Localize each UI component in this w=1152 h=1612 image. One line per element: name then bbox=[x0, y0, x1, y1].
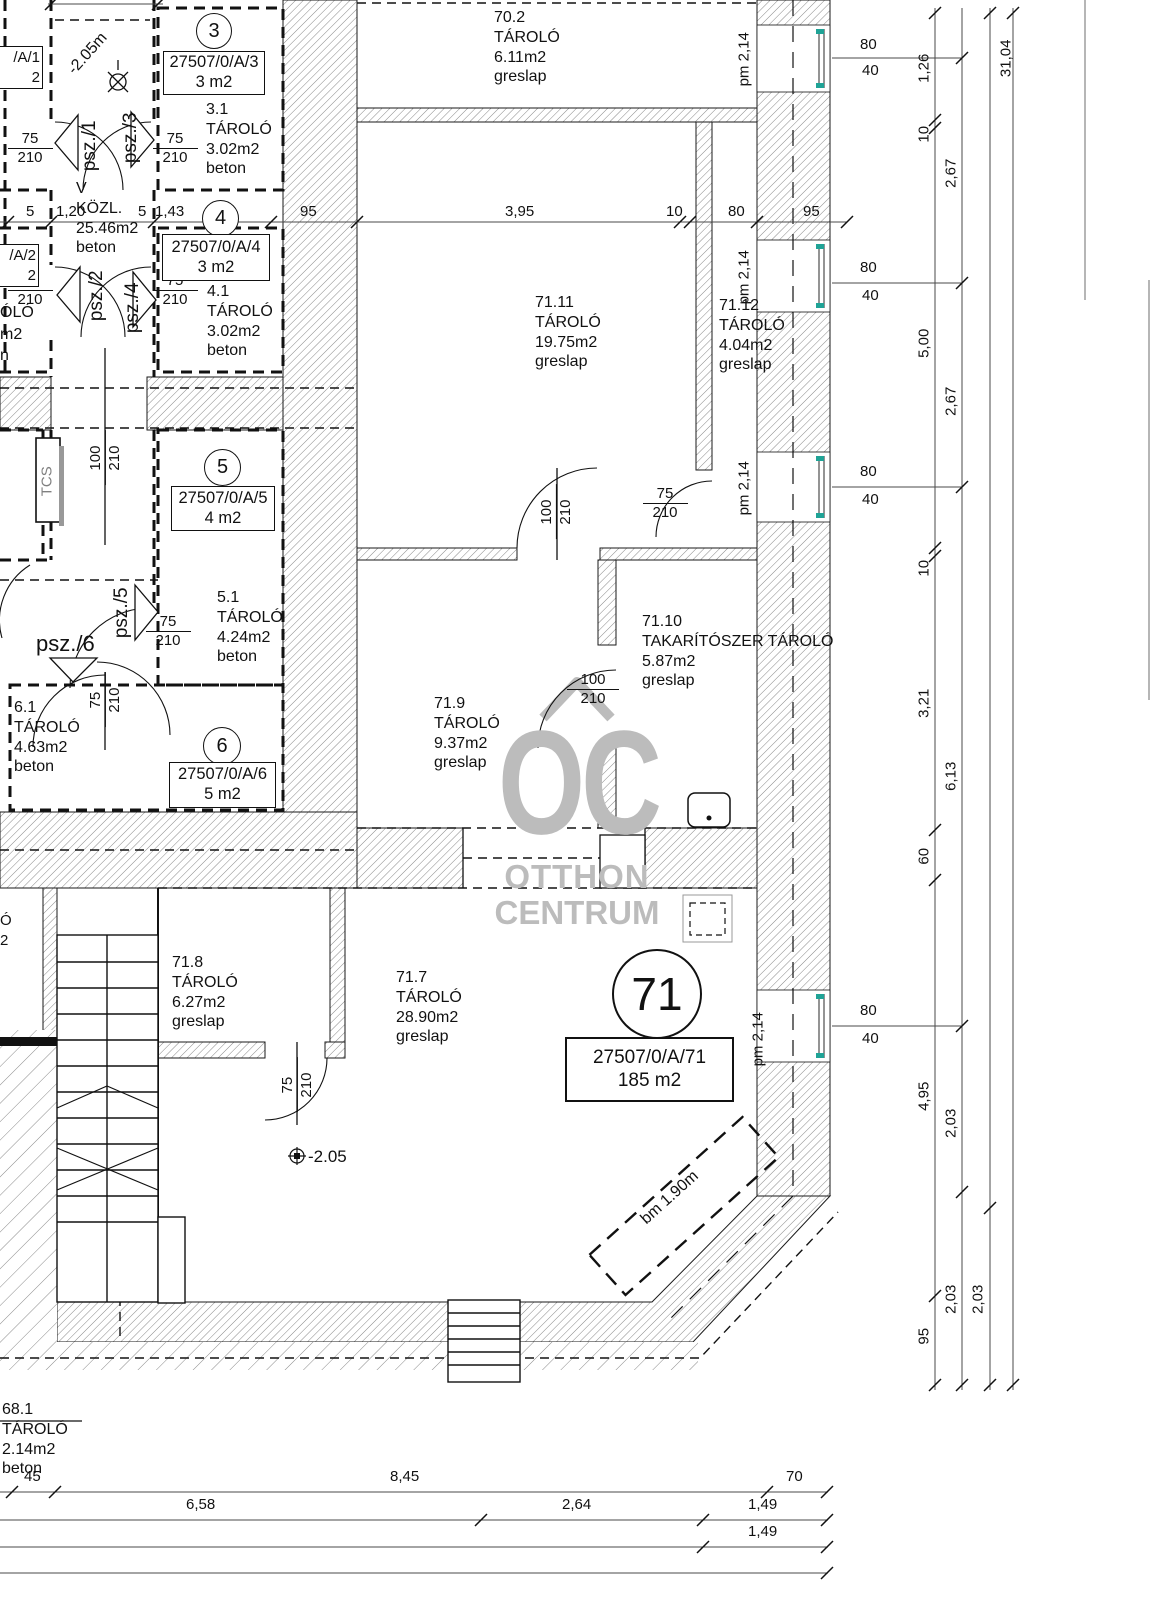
dim-label: 1,49 bbox=[748, 1496, 777, 1515]
dim-label: 1,49 bbox=[748, 1523, 777, 1542]
dim-label-total: 31,04 bbox=[998, 32, 1017, 84]
dim-label: 1,20 bbox=[56, 203, 85, 222]
window-width: 80 bbox=[860, 463, 877, 482]
unit-box-4: 27507/0/A/43 m2 bbox=[162, 234, 270, 281]
dim-label: 6,58 bbox=[186, 1496, 215, 1515]
room-label-71-12: 71.12TÁROLÓ4.04m2greslap bbox=[719, 296, 785, 375]
dim-label: 2,03 bbox=[970, 1276, 989, 1322]
survey-marker-top bbox=[108, 60, 128, 92]
dim-label: 2,67 bbox=[943, 150, 962, 196]
room-label-71-8: 71.8TÁROLÓ6.27m2greslap bbox=[172, 953, 238, 1032]
dim-label: 2,67 bbox=[943, 378, 962, 424]
dim-label: 70 bbox=[786, 1468, 803, 1487]
door-label-psz5: psz./5 bbox=[110, 578, 134, 648]
room-label-71-7: 71.7TÁROLÓ28.90m2greslap bbox=[396, 968, 462, 1047]
dim-label: 10 bbox=[916, 111, 935, 157]
unit-box-2-partial: /A/22 bbox=[0, 244, 39, 287]
dim-label: 10 bbox=[916, 545, 935, 591]
door-dim: 75210 bbox=[150, 614, 186, 648]
window-height: 40 bbox=[862, 62, 879, 81]
dim-label: 8,45 bbox=[390, 1468, 419, 1487]
dim-label: 95 bbox=[803, 203, 820, 222]
dim-label: 2,03 bbox=[943, 1276, 962, 1322]
dim-label: 1,26 bbox=[916, 45, 935, 91]
window-parapet-label: pm 2,14 bbox=[736, 456, 755, 520]
room-label-fragment-b: Ó2 bbox=[0, 911, 12, 952]
unit-circle-5: 5 bbox=[204, 449, 241, 486]
room-label-71-9: 71.9TÁROLÓ9.37m2greslap bbox=[434, 694, 500, 773]
door-label-psz4: psz./4 bbox=[121, 273, 145, 343]
dim-label: 10 bbox=[666, 203, 683, 222]
window-width: 80 bbox=[860, 36, 877, 55]
dim-label: 2,64 bbox=[562, 1496, 591, 1515]
door-dim: 100210 bbox=[539, 490, 573, 534]
window-height: 40 bbox=[862, 1030, 879, 1049]
door-label-psz2: psz./2 bbox=[85, 261, 109, 331]
sink-icon bbox=[688, 793, 730, 827]
door-dim: 75210 bbox=[88, 678, 122, 722]
room-label-5-1: 5.1TÁROLÓ4.24m2beton bbox=[217, 588, 283, 667]
door-dim: 75210 bbox=[157, 131, 193, 165]
unit-circle-4: 4 bbox=[202, 200, 239, 237]
door-dim: 100210 bbox=[88, 436, 122, 480]
room-label-71-10: 71.10TAKARÍTÓSZER TÁROLÓ5.87m2greslap bbox=[642, 612, 833, 691]
elevation-marker bbox=[288, 1147, 306, 1165]
dim-label: 3,95 bbox=[505, 203, 534, 222]
unit-box-5: 27507/0/A/54 m2 bbox=[171, 486, 275, 531]
door-dim: 75210 bbox=[12, 131, 48, 165]
dim-label: 5 bbox=[26, 203, 34, 222]
unit-box-1-partial: /A/12 bbox=[0, 46, 43, 89]
room-label-kozl: VKÖZL.25.46m2beton bbox=[76, 179, 138, 258]
room-label-70-2: 70.2TÁROLÓ6.11m2greslap bbox=[494, 8, 560, 87]
door-label-psz1: psz./1 bbox=[78, 111, 102, 181]
dim-label: 45 bbox=[24, 1468, 41, 1487]
dim-label: 5 bbox=[138, 203, 146, 222]
room-label-6-1: 6.1TÁROLÓ4.63m2beton bbox=[14, 698, 80, 777]
level-label-main: -2.05 bbox=[308, 1146, 347, 1167]
dim-label: 2,03 bbox=[943, 1100, 962, 1146]
dim-label: 95 bbox=[300, 203, 317, 222]
dim-label: 1,43 bbox=[155, 203, 184, 222]
window-width: 80 bbox=[860, 259, 877, 278]
unit-circle-6: 6 bbox=[203, 727, 241, 765]
unit-box-3: 27507/0/A/33 m2 bbox=[163, 51, 265, 95]
window-height: 40 bbox=[862, 287, 879, 306]
door-dim: 75210 bbox=[647, 486, 683, 520]
floorplan-page: OC OTTHON CENTRUM bbox=[0, 0, 1152, 1612]
window-width: 80 bbox=[860, 1002, 877, 1021]
watermark-logo: OC bbox=[500, 676, 656, 887]
wall-solid bbox=[0, 1037, 57, 1046]
door-label-psz6: psz./6 bbox=[36, 630, 95, 657]
unit-box-6: 27507/0/A/65 m2 bbox=[169, 762, 276, 808]
dim-label: 3,21 bbox=[916, 680, 935, 726]
shaft-label-tcs: TCS bbox=[39, 459, 58, 503]
dim-label: 5,00 bbox=[916, 320, 935, 366]
room-label-fragment-2: ÓLÓm2n bbox=[0, 302, 34, 367]
window-parapet-label: pm 2,14 bbox=[750, 1007, 769, 1071]
dim-label: 6,13 bbox=[943, 753, 962, 799]
room-label-71-11: 71.11TÁROLÓ19.75m2greslap bbox=[535, 293, 601, 372]
unit-circle-71: 71 bbox=[612, 949, 702, 1039]
unit-circle-3: 3 bbox=[196, 13, 232, 49]
unit-box-71: 27507/0/A/71185 m2 bbox=[565, 1037, 734, 1102]
dim-label: 60 bbox=[916, 833, 935, 879]
dim-label: 80 bbox=[728, 203, 745, 222]
window-parapet-label: pm 2,14 bbox=[736, 27, 755, 91]
watermark-line1: OTTHON bbox=[492, 858, 662, 896]
watermark-line2: CENTRUM bbox=[492, 894, 662, 932]
room-label-4-1: 4.1TÁROLÓ3.02m2beton bbox=[207, 282, 273, 361]
door-dim: 75210 bbox=[280, 1063, 314, 1107]
dim-label: 95 bbox=[916, 1313, 935, 1359]
room-label-3-1: 3.1TÁROLÓ3.02m2beton bbox=[206, 100, 272, 179]
window-height: 40 bbox=[862, 491, 879, 510]
door-label-psz3: psz./3 bbox=[119, 103, 143, 173]
dim-label: 4,95 bbox=[916, 1073, 935, 1119]
